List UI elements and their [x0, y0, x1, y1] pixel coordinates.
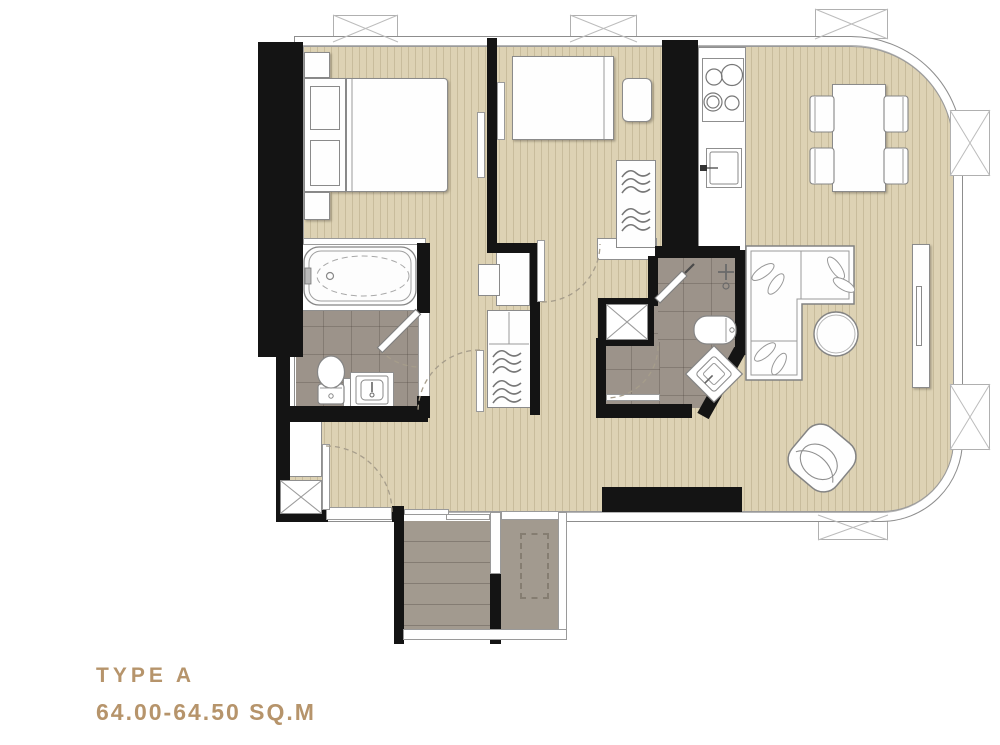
- wall-bedroom2-kitchen: [662, 40, 698, 256]
- closet-desk: [496, 252, 530, 306]
- wall-bath1-bottom: [276, 406, 428, 422]
- balcony-sliding-door-leaf-1: [404, 509, 449, 515]
- ac-condenser-unit: [520, 533, 549, 599]
- bedroom1-pillow-1: [310, 86, 340, 130]
- bedroom1-cabinet-top: [304, 52, 330, 78]
- bedroom2-nightstand: [622, 78, 652, 122]
- wall-bedroom-divider: [487, 38, 497, 250]
- master-bed: [346, 78, 448, 192]
- corridor-door-leaf: [476, 350, 484, 412]
- type-label: TYPE A: [96, 664, 316, 688]
- bedroom2-sliding-door: [497, 82, 505, 140]
- floor-plan-canvas: TYPE A 64.00-64.50 SQ.M: [0, 0, 1000, 745]
- bathtub-platform: [297, 243, 420, 311]
- wall-balcony-left: [394, 506, 404, 630]
- entry-shaft: [280, 480, 322, 514]
- bedroom1-sliding-door: [477, 112, 485, 178]
- bedroom1-cabinet-bottom: [304, 192, 330, 220]
- wall-left-main: [258, 42, 303, 357]
- balcony-floor: [403, 521, 490, 630]
- vestibule-sliding-door: [606, 394, 660, 401]
- balcony-bottom-railing: [403, 629, 567, 640]
- bathroom2-shaft: [606, 304, 648, 340]
- balcony-right-railing: [558, 512, 567, 632]
- wall-bath2-top: [655, 246, 740, 258]
- dining-table: [832, 84, 886, 192]
- wall-bath2-right: [735, 250, 748, 355]
- balcony-divider-glass: [490, 512, 501, 574]
- caption: TYPE A 64.00-64.50 SQ.M: [96, 664, 316, 726]
- bedroom1-pillow-2: [310, 140, 340, 186]
- wall-entry-post: [392, 506, 404, 522]
- bedroom2-door-leaf: [537, 240, 545, 302]
- awning-box-right-lower: [950, 384, 990, 450]
- stove: [702, 58, 744, 122]
- awning-box-top-right: [815, 9, 888, 39]
- wall-bottom-living: [602, 487, 742, 512]
- bathroom1-door-threshold: [418, 311, 430, 398]
- ac-ledge-top-band: [501, 511, 560, 520]
- balcony-sliding-door-leaf-2: [446, 514, 490, 520]
- bathroom-glass-ledge: [303, 238, 426, 245]
- bedroom2-wardrobe: [616, 160, 656, 248]
- tv-screen: [916, 286, 922, 346]
- wall-bath1-right-upper: [417, 243, 430, 313]
- area-label: 64.00-64.50 SQ.M: [96, 699, 316, 726]
- kitchen-sink: [706, 148, 742, 188]
- wall-vestibule-bottom: [596, 404, 692, 418]
- entry-threshold: [326, 507, 392, 520]
- single-bed: [512, 56, 614, 140]
- awning-box-right-upper: [950, 110, 990, 176]
- closet-chair: [478, 264, 500, 296]
- master-vanity: [350, 372, 394, 408]
- closet-wardrobe: [487, 310, 531, 408]
- wall-balcony-divider: [490, 572, 501, 632]
- entry-door-leaf: [322, 444, 330, 510]
